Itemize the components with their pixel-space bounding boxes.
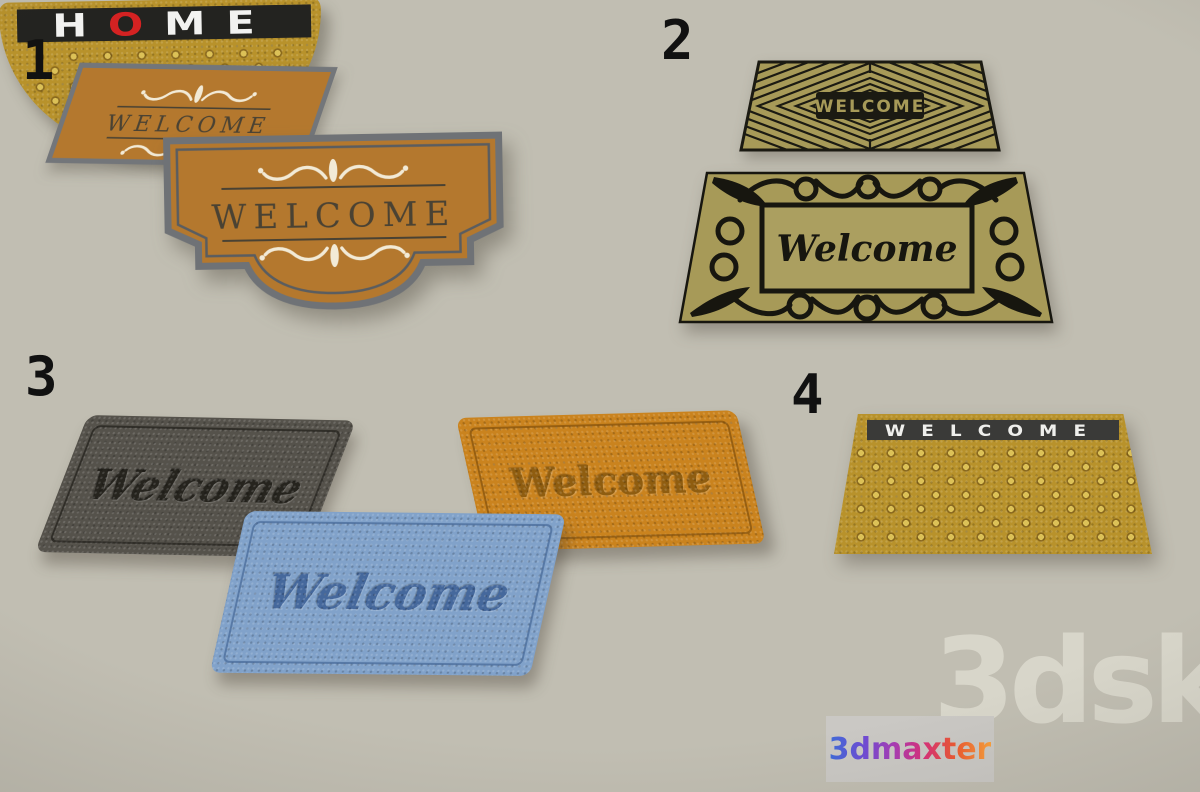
- mat-text: Welcome: [776, 228, 957, 270]
- mat-text: HOME: [52, 5, 276, 41]
- mat-text: Welcome: [80, 460, 310, 513]
- mat-text: WELCOME: [884, 421, 1101, 440]
- mat-text: WELCOME: [211, 194, 457, 238]
- author-logo-box: 3dmaxter: [826, 716, 994, 782]
- gold-mat-body: WELCOME: [834, 414, 1152, 554]
- home-banner: HOME: [17, 4, 312, 42]
- group-2-number: 2: [661, 14, 694, 68]
- doormat-ornate-scroll: Welcome: [678, 171, 1055, 325]
- welcome-banner: WELCOME: [867, 420, 1118, 440]
- group-1-number: 1: [22, 34, 55, 88]
- mat-text: Welcome: [505, 455, 716, 507]
- doormat-gold-dotted: WELCOME: [834, 414, 1152, 554]
- render-canvas: 1 2 3 4 WELCOME WELCOME: [0, 0, 1200, 792]
- doormat-coir-shaped: WELCOME: [156, 127, 511, 313]
- group-4-number: 4: [791, 368, 824, 422]
- doormat-rubber-blue: Welcome: [210, 511, 566, 676]
- red-letter-o: O: [108, 4, 165, 43]
- author-logo-text: 3dmaxter: [829, 732, 992, 767]
- doormat-geometric: WELCOME: [735, 59, 1005, 153]
- dot-grid: [853, 446, 1139, 546]
- mat-text: Welcome: [261, 564, 515, 622]
- mat-text: WELCOME: [815, 97, 926, 117]
- group-3-number: 3: [25, 350, 58, 404]
